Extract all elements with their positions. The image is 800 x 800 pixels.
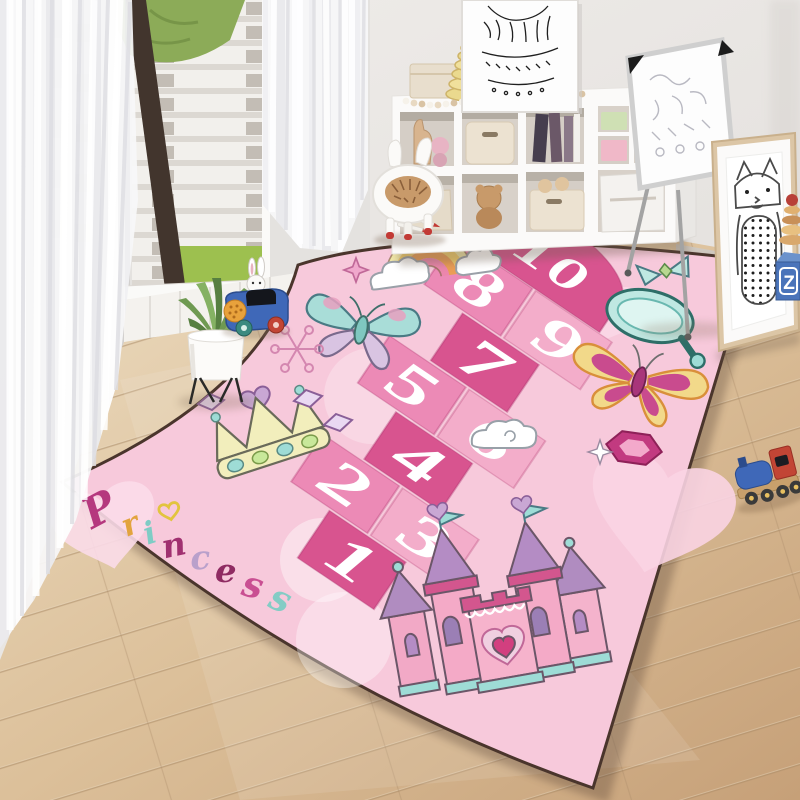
curtain-right-panel <box>262 0 368 252</box>
book <box>574 114 580 162</box>
block-letter-z: Z <box>783 273 795 294</box>
plush-pink <box>431 137 449 155</box>
storage-bin <box>530 190 584 230</box>
wooden-doll <box>555 177 569 191</box>
green-box <box>601 112 627 130</box>
pink-box <box>601 140 627 161</box>
cat-art-frame <box>712 133 800 362</box>
doodle-art-frame <box>462 0 582 114</box>
princess-letter: c <box>189 537 212 577</box>
storage-bin <box>466 122 514 164</box>
frame-shadow <box>578 4 582 114</box>
kids-room-photo: 10 8 9 7 5 6 4 2 3 1 <box>0 0 800 800</box>
folder <box>564 116 573 162</box>
plush-bear-body <box>476 207 502 229</box>
scene: 10 8 9 7 5 6 4 2 3 1 <box>0 0 800 800</box>
car-windshield <box>246 289 276 306</box>
plant-pot <box>188 336 244 380</box>
pale-circle <box>296 592 392 688</box>
hedgehog-patch <box>385 176 431 208</box>
wooden-doll <box>538 179 552 193</box>
letter-block: Z <box>776 252 800 300</box>
princess-letter: e <box>214 550 238 591</box>
